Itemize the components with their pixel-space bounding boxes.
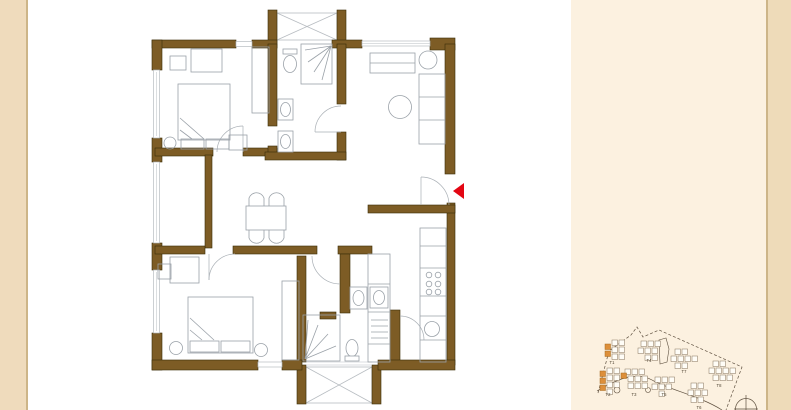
bathroom-2-fixtures — [303, 287, 367, 361]
site-unit — [669, 377, 675, 383]
site-unit — [662, 377, 668, 383]
shower — [303, 315, 340, 361]
bathroom-1-fixtures — [278, 44, 332, 152]
site-unit — [720, 361, 726, 367]
living-room-furniture — [370, 51, 445, 144]
site-cluster-T1: T1 — [605, 340, 625, 365]
site-cluster-T4: T4 — [638, 341, 661, 363]
nightstand — [255, 344, 268, 357]
site-unit — [716, 368, 722, 374]
plan-canvas: T1T2T3T4T7T5T6T8 — [0, 0, 791, 410]
floorplan-page: T1T2T3T4T7T5T6T8 — [0, 0, 791, 410]
site-unit — [655, 377, 661, 383]
site-unit — [628, 376, 634, 382]
site-unit — [678, 356, 684, 362]
site-unit-highlighted — [605, 344, 611, 350]
site-unit — [682, 349, 688, 355]
site-unit — [652, 348, 658, 354]
site-unit — [692, 356, 698, 362]
site-cluster-T2: T2 — [600, 368, 620, 397]
nightstand — [164, 137, 176, 149]
site-unit — [628, 383, 634, 389]
double-bed — [178, 84, 230, 140]
site-unit — [642, 376, 648, 382]
entrance-direction-arrow — [453, 183, 464, 199]
site-unit — [695, 390, 701, 396]
site-unit-highlighted — [605, 351, 611, 357]
site-cluster-label: T3 — [632, 392, 638, 397]
toilet — [345, 340, 359, 362]
site-cluster-label: T5 — [662, 392, 668, 397]
bathroom2-door-arc — [312, 256, 340, 284]
doors — [209, 106, 424, 340]
site-unit — [702, 390, 708, 396]
site-unit — [723, 368, 729, 374]
site-unit — [652, 384, 658, 390]
site-plan: T1T2T3T4T7T5T6T8 — [597, 327, 758, 410]
windows — [154, 41, 431, 367]
site-unit — [648, 341, 654, 347]
site-unit — [691, 383, 697, 389]
site-unit — [698, 397, 704, 403]
washbasin — [350, 287, 367, 309]
site-unit — [639, 369, 645, 375]
site-cluster-label: T7 — [682, 369, 688, 374]
site-unit — [688, 390, 694, 396]
site-cluster-T7: T7 — [671, 349, 698, 374]
site-unit-highlighted — [621, 373, 627, 379]
site-unit — [607, 375, 613, 381]
plant — [419, 51, 437, 69]
tree — [614, 387, 620, 393]
site-building-clusters: T1T2T3T4T7T5T6T8 — [600, 340, 736, 410]
site-cluster-label: T4 — [647, 358, 653, 363]
site-unit — [685, 356, 691, 362]
site-unit — [709, 368, 715, 374]
sofa — [419, 74, 445, 144]
site-unit — [713, 375, 719, 381]
coffee-table — [389, 96, 412, 119]
site-unit — [675, 349, 681, 355]
hob — [426, 272, 441, 295]
site-unit-highlighted — [600, 385, 606, 391]
site-unit-highlighted — [600, 378, 606, 384]
site-cluster-T5: T5 — [652, 377, 675, 397]
washbasin — [278, 131, 293, 152]
dishwasher — [371, 320, 388, 338]
site-cluster-T3: T3 — [621, 369, 648, 397]
bedroom-1-furniture — [164, 47, 269, 150]
site-unit — [614, 382, 620, 388]
site-unit — [612, 354, 618, 360]
site-unit — [635, 383, 641, 389]
kitchen-fixtures — [368, 228, 446, 362]
site-unit — [727, 375, 733, 381]
site-cluster-label: T6 — [697, 405, 703, 410]
site-cluster-label: T1 — [610, 360, 616, 365]
site-unit — [641, 341, 647, 347]
site-unit — [612, 340, 618, 346]
site-unit — [645, 348, 651, 354]
desk — [170, 257, 199, 283]
wardrobe — [282, 281, 299, 360]
site-unit — [635, 376, 641, 382]
site-unit — [638, 348, 644, 354]
entrance — [421, 177, 464, 205]
chair — [249, 230, 264, 243]
chair — [249, 193, 264, 206]
site-unit — [682, 363, 688, 369]
site-cluster-T6: T6 — [688, 383, 708, 410]
site-cluster-T8: T8 — [709, 361, 736, 388]
site-unit — [614, 368, 620, 374]
site-unit — [619, 347, 625, 353]
nightstand — [170, 342, 183, 355]
site-unit-highlighted — [600, 371, 606, 377]
site-unit — [642, 383, 648, 389]
entrance-door-arc — [421, 177, 449, 205]
wardrobe — [252, 47, 269, 113]
side-table — [170, 56, 186, 70]
compass-icon — [734, 395, 758, 410]
dining-table — [246, 206, 286, 230]
site-cluster-label: T8 — [717, 383, 723, 388]
bathroom1-door-arc — [315, 106, 341, 132]
site-unit — [619, 340, 625, 346]
site-unit — [612, 347, 618, 353]
site-unit — [730, 368, 736, 374]
toilet — [283, 49, 297, 73]
site-unit — [614, 375, 620, 381]
site-unit — [632, 369, 638, 375]
walls — [152, 38, 455, 370]
site-unit — [619, 354, 625, 360]
kitchen-counter — [420, 228, 446, 362]
site-unit — [655, 341, 661, 347]
dining-furniture — [246, 193, 286, 243]
site-unit — [698, 383, 704, 389]
site-unit — [607, 382, 613, 388]
floor-plan — [152, 10, 464, 404]
site-unit — [666, 384, 672, 390]
washing-machine — [425, 322, 440, 337]
bedroom2-door-arc — [209, 254, 235, 280]
bedroom-2-furniture — [158, 257, 299, 360]
balcony-bottom — [297, 362, 381, 404]
site-unit — [713, 361, 719, 367]
site-unit — [720, 375, 726, 381]
site-cluster-label: T2 — [606, 392, 612, 397]
site-unit — [671, 356, 677, 362]
chair — [269, 230, 284, 243]
site-unit — [607, 368, 613, 374]
site-unit — [691, 397, 697, 403]
site-unit — [652, 355, 658, 361]
site-unit — [659, 384, 665, 390]
washbasin — [278, 99, 293, 120]
dresser — [191, 49, 222, 72]
chair — [269, 193, 284, 206]
kitchen-sink — [370, 287, 388, 308]
site-unit — [675, 363, 681, 369]
shower — [301, 44, 332, 84]
